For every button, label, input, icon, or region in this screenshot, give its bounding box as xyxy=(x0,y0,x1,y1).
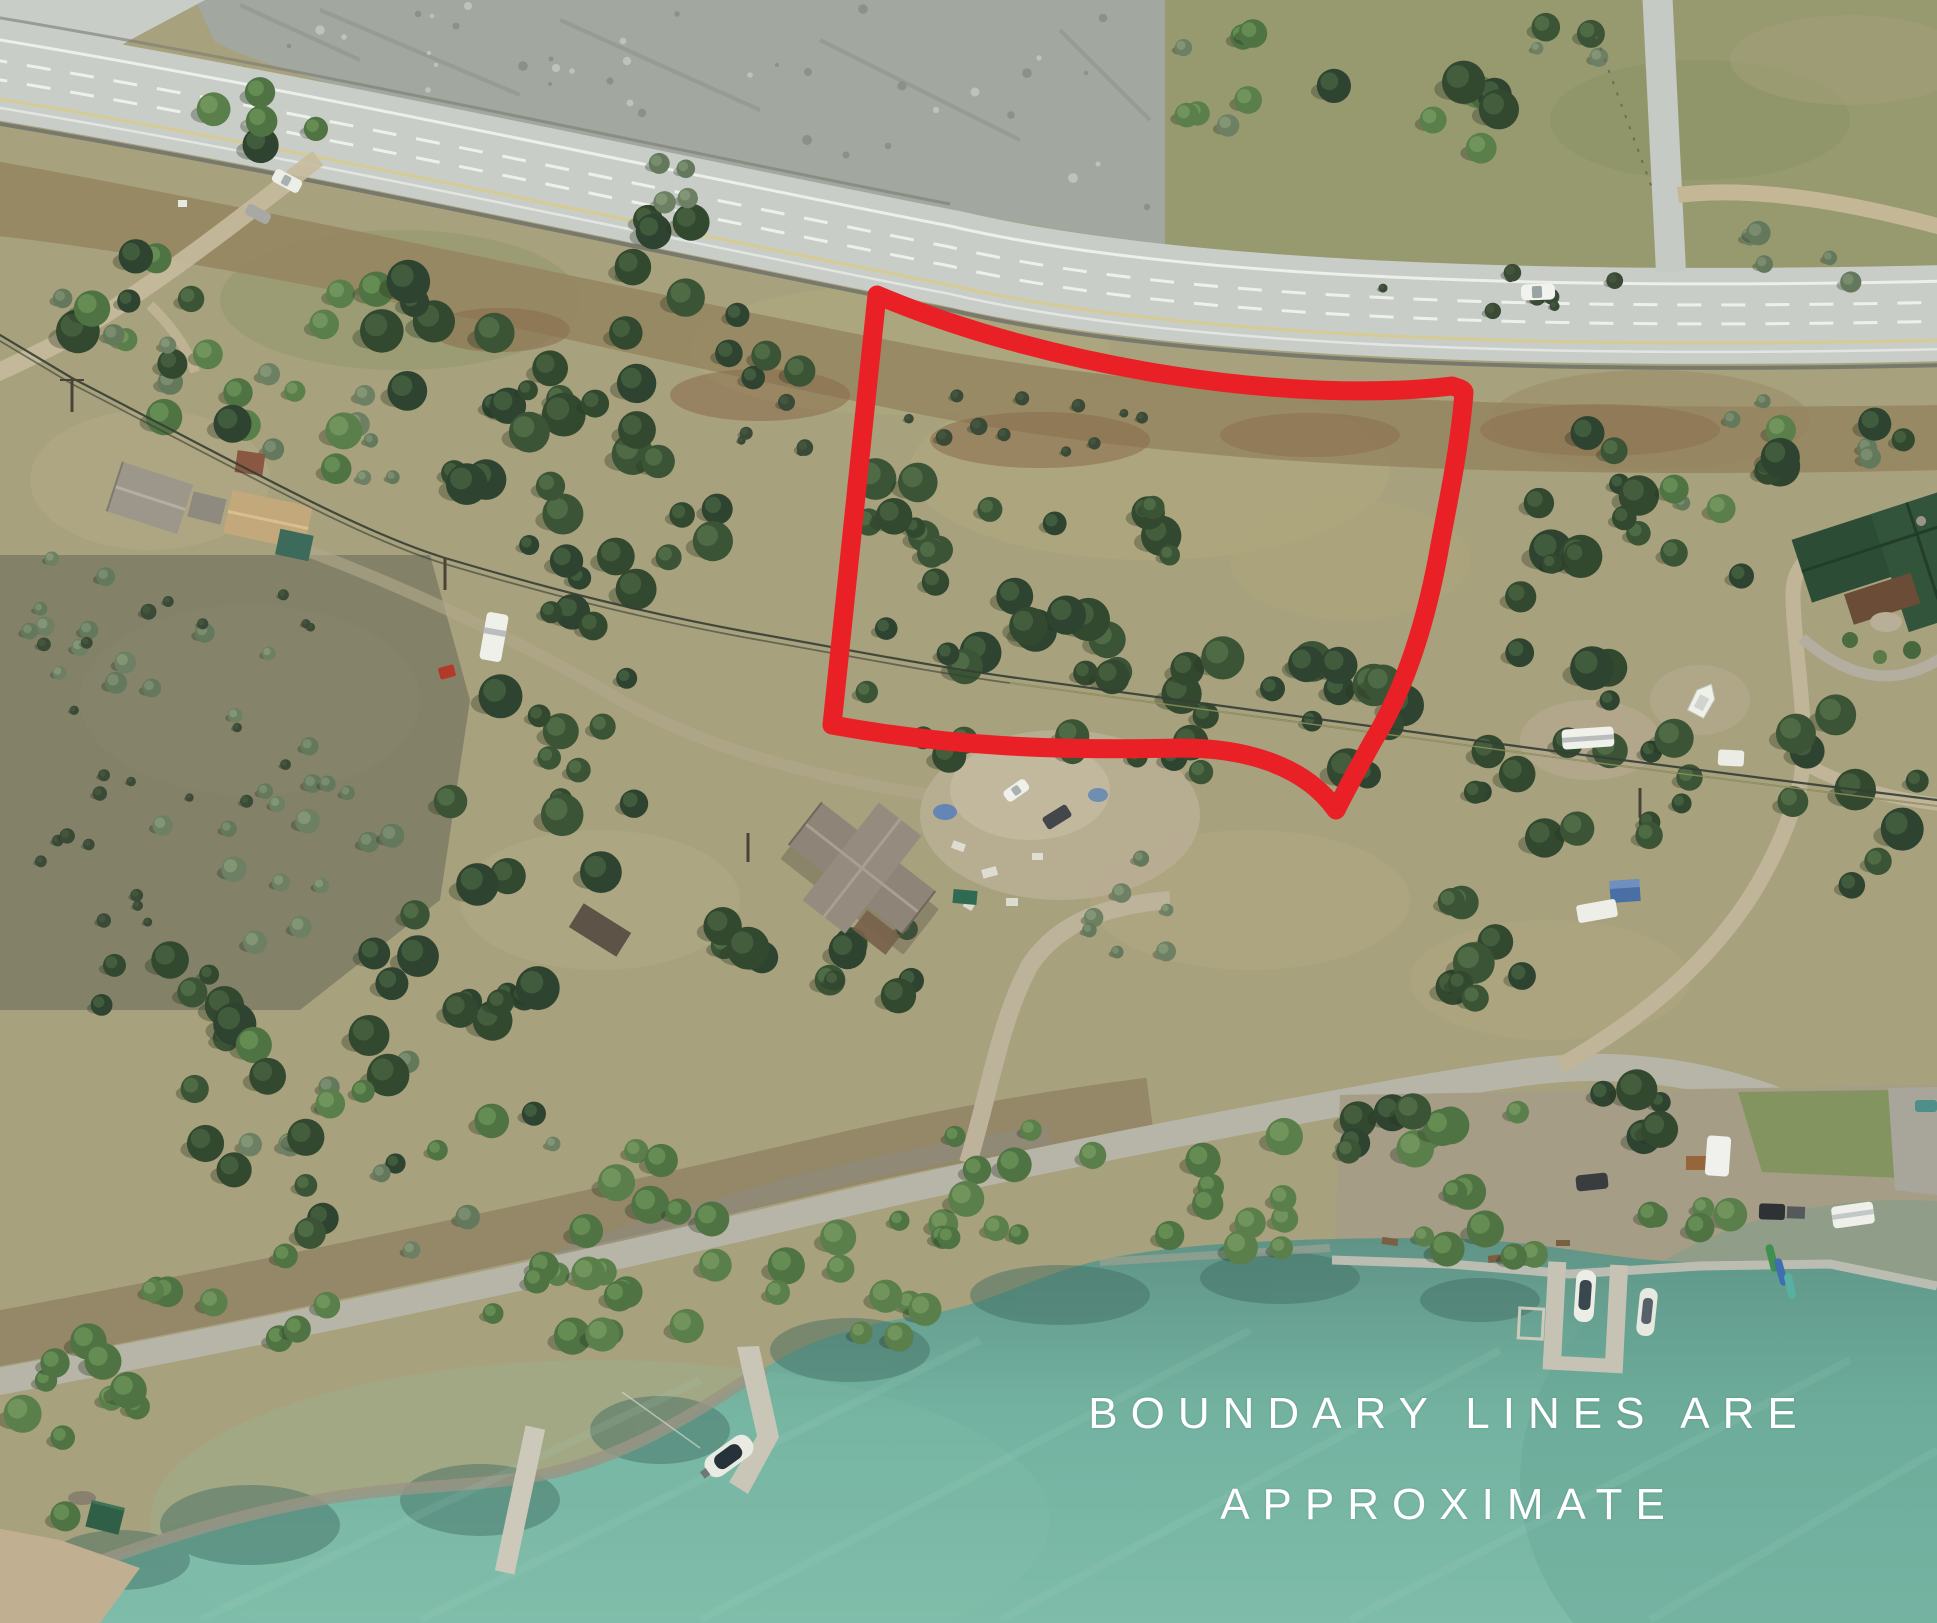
rock-speckle xyxy=(804,68,812,76)
road-sign xyxy=(178,200,187,207)
rock-speckle xyxy=(843,152,850,159)
vehicle-car-highway xyxy=(1521,283,1556,300)
rock-speckle xyxy=(1022,68,1032,78)
rock-speckle xyxy=(858,4,868,14)
rock-speckle xyxy=(415,11,421,17)
rock-speckle xyxy=(620,38,627,45)
rock-speckle xyxy=(747,72,753,78)
fifth-wheel-rv xyxy=(1561,726,1614,750)
blue-shed xyxy=(1609,879,1640,903)
lawn xyxy=(1738,1090,1900,1178)
rock-speckle xyxy=(1096,162,1101,167)
rock-speckle xyxy=(1036,55,1041,60)
boat-marina-1 xyxy=(1573,1269,1597,1322)
rock-speckle xyxy=(430,14,434,18)
aerial-photo: BOUNDARY LINES ARE APPROXIMATE xyxy=(0,0,1937,1623)
rock-speckle xyxy=(623,57,631,65)
small-camper xyxy=(1718,749,1745,766)
rock-speckle xyxy=(885,143,892,150)
rock-speckle xyxy=(1099,14,1108,23)
blue-tarp xyxy=(1088,788,1108,802)
rock-speckle xyxy=(548,82,552,86)
rock-speckle xyxy=(434,63,438,67)
green-trailer xyxy=(952,889,977,905)
rock-speckle xyxy=(315,25,324,34)
rock-speckle xyxy=(552,64,560,72)
rock-speckle xyxy=(518,61,528,71)
rock-speckle xyxy=(569,68,575,74)
rock-speckle xyxy=(606,77,613,84)
boundary-disclaimer-line1: BOUNDARY LINES ARE xyxy=(1088,1392,1809,1436)
teal-car xyxy=(1915,1100,1937,1112)
park-white-van xyxy=(1705,1135,1732,1177)
rock-speckle xyxy=(933,107,939,113)
patio xyxy=(1870,612,1902,632)
rock-speckle xyxy=(1007,111,1015,119)
blue-tarp xyxy=(933,804,957,820)
rock-speckle xyxy=(638,109,646,117)
rock-speckle xyxy=(898,82,907,91)
aerial-photo-canvas xyxy=(0,0,1937,1623)
rock-speckle xyxy=(425,87,431,93)
rock-speckle xyxy=(453,23,460,30)
side-road-paved xyxy=(1657,0,1671,272)
rock-speckle xyxy=(674,11,679,16)
rock-speckle xyxy=(427,51,431,55)
boundary-disclaimer-line2: APPROXIMATE xyxy=(1220,1483,1678,1527)
rock-speckle xyxy=(627,100,634,107)
rock-speckle xyxy=(341,34,347,40)
rock-speckle xyxy=(1068,173,1078,183)
rock-speckle xyxy=(971,88,980,97)
rock-speckle xyxy=(287,44,292,49)
rock-speckle xyxy=(1084,71,1088,75)
dumpster xyxy=(1686,1156,1707,1170)
rock-speckle xyxy=(549,57,554,62)
rock-speckle xyxy=(802,135,812,145)
dark-suv-park xyxy=(1575,1172,1608,1191)
rock-speckle xyxy=(464,2,472,10)
rock-speckle xyxy=(775,63,779,67)
rock-speckle xyxy=(1144,204,1150,210)
